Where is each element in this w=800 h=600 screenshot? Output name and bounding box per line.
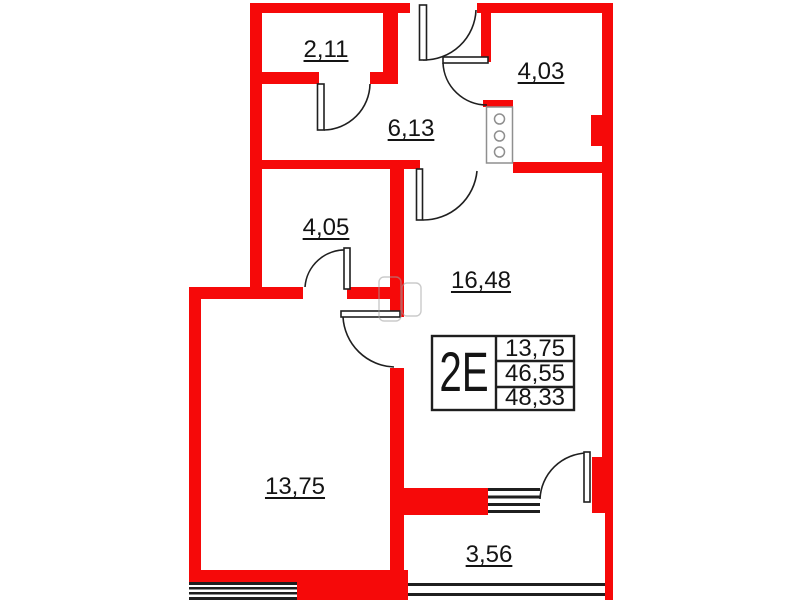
- area-label-kitchen-living: 16,48: [451, 269, 511, 293]
- area-label-closet: 2,11: [304, 38, 349, 62]
- spec-apartment-area: 46,55: [505, 362, 565, 386]
- area-label-storeroom: 4,05: [303, 216, 350, 240]
- area-label-balcony: 3,56: [466, 543, 513, 567]
- spec-total-area: 48,33: [505, 386, 565, 410]
- floor-plan: 2,11 4,03 6,13 4,05 16,48 13,75 3,56 2E …: [0, 0, 800, 600]
- labels-layer: 2,11 4,03 6,13 4,05 16,48 13,75 3,56 2E …: [0, 0, 800, 600]
- apartment-type-label: 2E: [439, 344, 488, 400]
- area-label-bedroom: 13,75: [265, 475, 325, 499]
- area-label-hallway: 6,13: [388, 117, 435, 141]
- spec-living-area: 13,75: [505, 337, 565, 361]
- area-label-bathroom: 4,03: [518, 60, 565, 84]
